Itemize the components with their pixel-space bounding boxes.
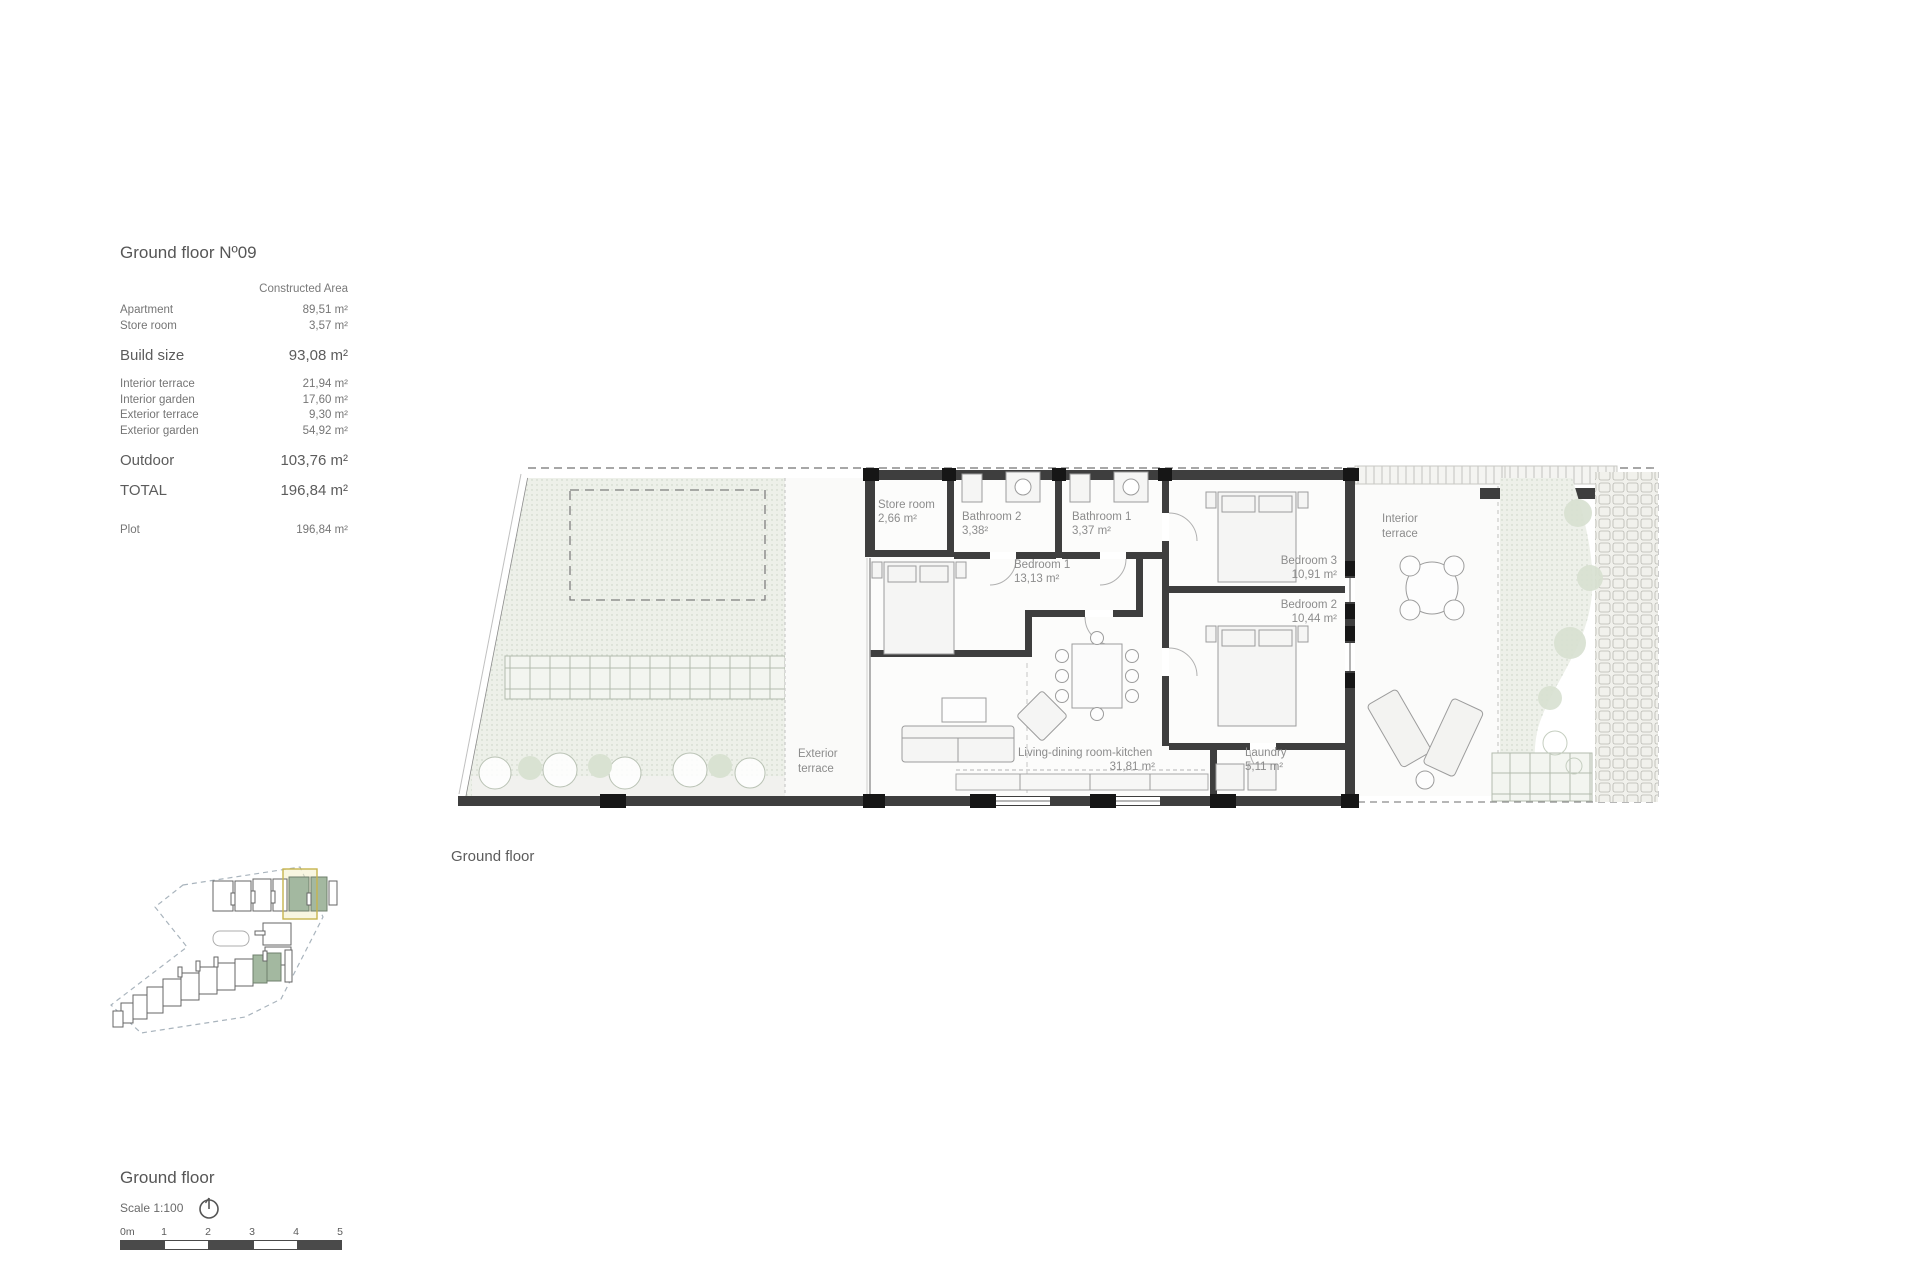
table-row-total: TOTAL196,84 m²	[120, 482, 348, 499]
table-row-outdoor: Outdoor103,76 m²	[120, 452, 348, 469]
north-arrow-icon	[197, 1196, 221, 1220]
bedroom3-label: Bedroom 3	[1281, 555, 1337, 567]
bedroom1-label: Bedroom 1	[1014, 559, 1070, 571]
table-row: Exterior terrace9,30 m²	[120, 408, 348, 424]
living-room-label: Living-dining room-kitchen	[1018, 747, 1152, 759]
laundry-label: Laundry	[1245, 747, 1287, 759]
scale-label: Scale 1:100	[120, 1201, 183, 1215]
scale-tick: 5	[337, 1226, 343, 1238]
scale-bar: 0m 1 2 3 4 5	[120, 1226, 340, 1250]
interior-terrace-label: terrace	[1382, 528, 1418, 540]
bathroom2-area: 3,38²	[962, 525, 988, 537]
floor-plan-sheet: Ground floor Nº09 Constructed Area Apart…	[0, 0, 1920, 1280]
store-room-label: Store room	[878, 499, 935, 511]
bathroom1-label: Bathroom 1	[1072, 511, 1131, 523]
bedroom3-area: 10,91 m²	[1292, 569, 1338, 581]
area-summary-table: Ground floor Nº09 Constructed Area Apart…	[120, 243, 348, 539]
exterior-garden-left	[466, 478, 785, 798]
footer-scale-block: Ground floor Scale 1:100 0m 1 2 3 4 5	[120, 1168, 380, 1250]
scale-tick: 2	[205, 1226, 211, 1238]
interior-terrace-label: Interior	[1382, 513, 1418, 525]
bedroom2-area: 10,44 m²	[1292, 613, 1338, 625]
scale-bar-segments	[120, 1240, 342, 1250]
living-room-area: 31,81 m²	[1110, 761, 1156, 773]
bedroom2-label: Bedroom 2	[1281, 599, 1337, 611]
highlighted-green-units	[289, 877, 327, 911]
bathroom2-label: Bathroom 2	[962, 511, 1021, 523]
garden-paving-grid	[505, 656, 785, 699]
site-location-map	[95, 855, 355, 1055]
store-room-area: 2,66 m²	[878, 513, 917, 525]
pergola-strip	[1355, 466, 1505, 484]
column-header: Constructed Area	[120, 283, 348, 295]
table-row: Apartment89,51 m²	[120, 303, 348, 319]
bathroom1-area: 3,37 m²	[1072, 525, 1111, 537]
bedroom1-area: 13,13 m²	[1014, 573, 1060, 585]
scale-tick: 4	[293, 1226, 299, 1238]
laundry-area: 5,11 m²	[1245, 761, 1283, 773]
table-row: Store room3,57 m²	[120, 319, 348, 335]
table-row: Exterior garden54,92 m²	[120, 424, 348, 440]
footer-title: Ground floor	[120, 1168, 380, 1188]
exterior-garden-right	[1492, 472, 1658, 802]
car-outline	[213, 931, 249, 946]
plan-caption: Ground floor	[451, 848, 534, 865]
scale-tick: 1	[161, 1226, 167, 1238]
table-row-plot: Plot196,84 m²	[120, 523, 348, 539]
scale-tick: 0m	[120, 1226, 135, 1238]
table-row: Interior terrace21,94 m²	[120, 377, 348, 393]
table-row-build-size: Build size93,08 m²	[120, 347, 348, 364]
scale-tick: 3	[249, 1226, 255, 1238]
table-row: Interior garden17,60 m²	[120, 393, 348, 409]
stone-path	[1595, 472, 1658, 802]
floor-plan-drawing: Store room 2,66 m² Bathroom 2 3,38² Bath…	[450, 458, 1665, 843]
sheet-title: Ground floor Nº09	[120, 243, 348, 263]
garden-paving-grid	[1492, 753, 1592, 801]
exterior-terrace-label: Exterior	[798, 748, 838, 760]
highlighted-green-units	[253, 951, 281, 983]
exterior-terrace-label: terrace	[798, 763, 834, 775]
